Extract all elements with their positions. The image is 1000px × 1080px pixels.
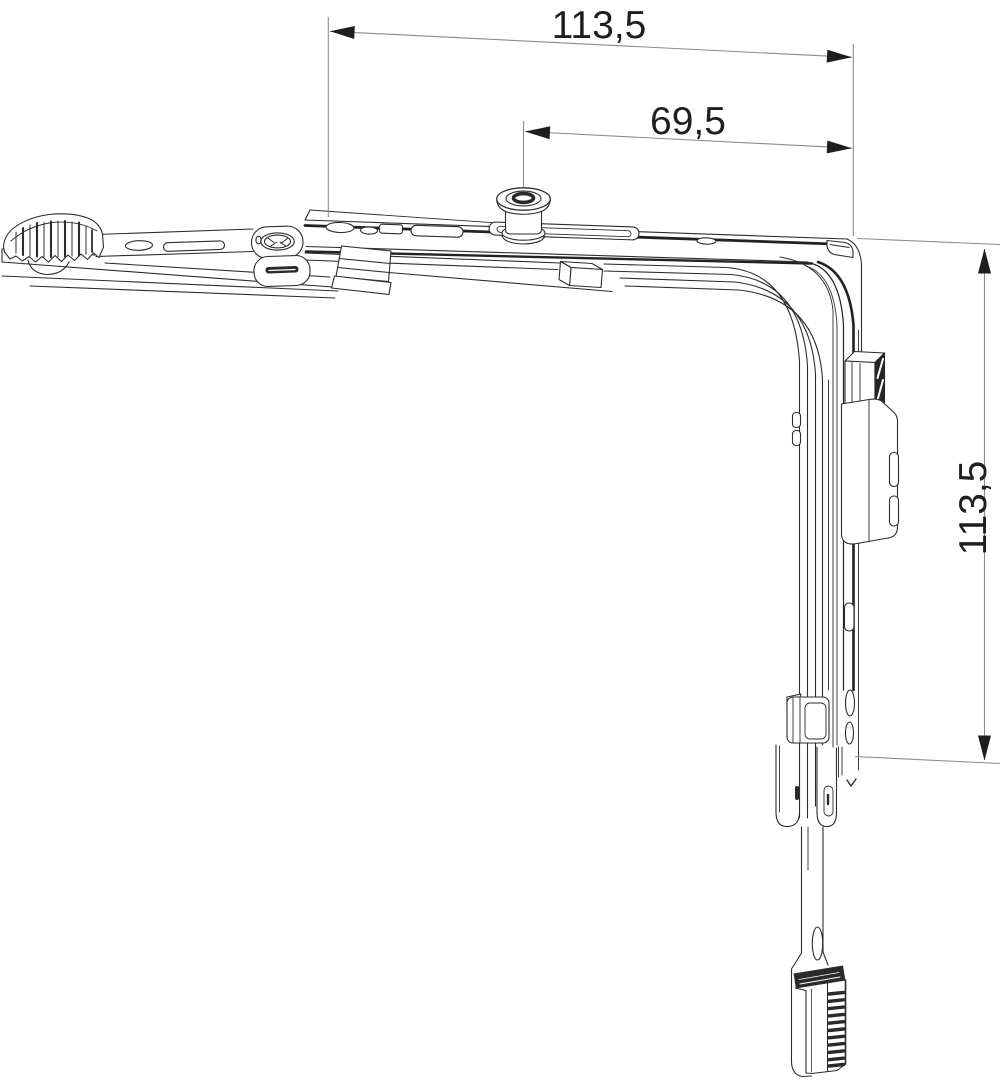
pin-offset-dimension: 69,5 [525, 100, 852, 153]
technical-drawing-canvas: 113,5 69,5 113,5 [0, 0, 1000, 1080]
arrow-right-icon [827, 141, 852, 154]
arrow-right-icon [827, 50, 852, 63]
arrow-left-icon [330, 26, 355, 39]
striker-block [842, 399, 899, 544]
roller-cams [846, 690, 857, 786]
stay-arm [96, 229, 253, 257]
arrow-down-icon [978, 736, 991, 761]
hardware-assembly [2, 188, 899, 1077]
toothed-rack-end [794, 966, 846, 1074]
pivot-rivet [251, 226, 311, 287]
arrow-up-icon [978, 249, 991, 274]
side-height-dimension: 113,5 [952, 249, 995, 761]
top-width-dimension: 113,5 [330, 4, 852, 63]
mushroom-pin [497, 188, 551, 244]
guide-clip [787, 694, 829, 743]
faceplate-ends [776, 745, 842, 827]
top-width-dimension-label: 113,5 [552, 4, 647, 47]
end-boss [559, 262, 603, 288]
side-height-dimension-label: 113,5 [952, 461, 995, 556]
arrow-left-icon [525, 126, 550, 139]
corner-hinge-drawing: 113,5 69,5 113,5 [0, 0, 1000, 1080]
sliding-shoe [332, 246, 392, 295]
pin-offset-dimension-label: 69,5 [650, 100, 726, 143]
dimension-annotations: 113,5 69,5 113,5 [328, 4, 1000, 764]
